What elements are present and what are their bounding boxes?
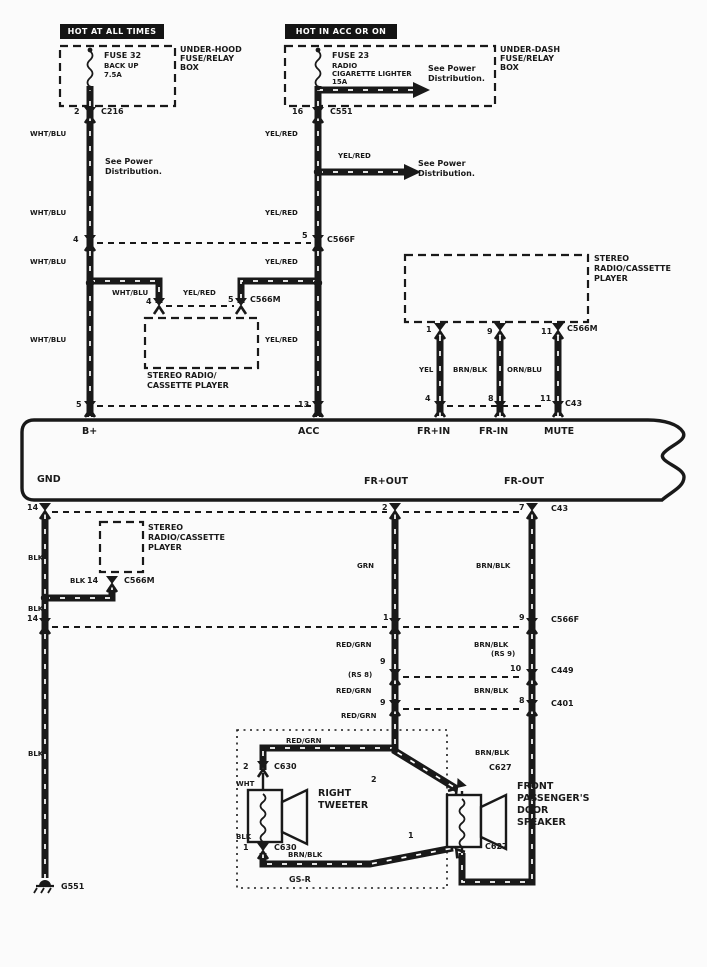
fuse-rating: 15A [332, 78, 347, 86]
wire-color-label: BLK [28, 605, 43, 613]
banner-label: HOT AT ALL TIMES [68, 27, 157, 36]
wire-color-label: YEL/RED [265, 130, 298, 138]
door-speaker-icon [447, 795, 506, 849]
wire-color-label: YEL [419, 366, 433, 374]
connector-label: C43 [565, 399, 582, 408]
wire-color-label: GRN [357, 562, 374, 570]
component-label: PLAYER [594, 274, 628, 283]
pin-number: 1 [383, 613, 389, 622]
pin-number: 5 [228, 295, 234, 304]
connector-label: C627 [485, 842, 508, 851]
note: See Power [428, 64, 476, 73]
component-label: FRONT [517, 782, 553, 791]
wire-color-label: BRN/BLK [453, 366, 487, 374]
wire-color-label: ORN/BLU [507, 366, 542, 374]
wire-color-label: BLK [28, 750, 43, 758]
wire-color-label: RED/GRN [336, 641, 372, 649]
wire-color-label: RED/GRN [336, 687, 372, 695]
component-label: SPEAKER [517, 818, 566, 827]
pin-number: 2 [243, 762, 249, 771]
pin-number: 7 [519, 503, 525, 512]
arrow-icon [413, 82, 430, 98]
pin-number: 11 [540, 394, 551, 403]
wire-color-label: WHT/BLU [112, 289, 148, 297]
component-label: RADIO/CASSETTE [148, 533, 225, 542]
terminal-label: FR+IN [417, 427, 450, 436]
wire-color-label: BRN/BLK [476, 562, 510, 570]
note: See Power [105, 157, 153, 166]
connector-label: C566F [327, 235, 355, 244]
pin-number: 13 [298, 400, 309, 409]
rs-note: (RS 8) [348, 671, 372, 679]
pin-number: 5 [302, 231, 308, 240]
pin-number: 2 [371, 775, 377, 784]
option-label: GS-R [286, 875, 314, 884]
terminal-label: FR-IN [479, 427, 508, 436]
wire-color-label: YEL/RED [338, 152, 371, 160]
fuse-icon [88, 48, 93, 91]
banner-label: HOT IN ACC OR ON [296, 27, 387, 36]
pin-number: 1 [408, 831, 414, 840]
connector-label: C566M [250, 295, 281, 304]
wire-color-label: BRN/BLK [474, 641, 508, 649]
box-label: FUSE/RELAY [180, 54, 234, 63]
pin-number: 9 [380, 657, 386, 666]
wire-blk-ground [45, 514, 112, 878]
pin-number: 16 [292, 107, 303, 116]
pin-number: 14 [27, 503, 38, 512]
diagram-linework [0, 0, 707, 967]
pin-number: 1 [426, 325, 432, 334]
pin-number: 5 [76, 400, 82, 409]
pin-number: 9 [380, 698, 386, 707]
box-label: UNDER-HOOD [180, 45, 242, 54]
note: Distribution. [418, 169, 475, 178]
wire-color-label: RED/GRN [286, 737, 322, 745]
wire-color-label: YEL/RED [265, 209, 298, 217]
fuse-name: FUSE 23 [332, 51, 369, 60]
connector-label: C627 [489, 763, 512, 772]
component-label: TWEETER [318, 801, 368, 810]
wire-color-label: YEL/RED [265, 336, 298, 344]
connector-label: C216 [101, 107, 124, 116]
box-label: FUSE/RELAY [500, 54, 554, 63]
connector-label: C566F [551, 615, 579, 624]
ground-label: G551 [61, 882, 84, 891]
terminal-label: FR+OUT [364, 477, 408, 486]
radio-unit-outline [22, 420, 684, 500]
pin-number: 9 [519, 613, 525, 622]
wire-color-label: WHT [236, 780, 254, 788]
connector-label: C449 [551, 666, 574, 675]
terminal-label: MUTE [544, 427, 574, 436]
pin-number: 2 [74, 107, 80, 116]
fuse-icon [316, 48, 321, 91]
pin-number: 8 [519, 696, 525, 705]
pin-number: 14 [87, 576, 98, 585]
pin-number: 4 [146, 297, 152, 306]
terminal-label: FR-OUT [504, 477, 544, 486]
fuse-rating: 7.5A [104, 71, 122, 79]
pin-number: 10 [510, 664, 521, 673]
component-label: STEREO RADIO/ [147, 371, 217, 380]
component-label: STEREO [594, 254, 629, 263]
component-label: DOOR [517, 806, 548, 815]
connector-label: C43 [551, 504, 568, 513]
wire-color-label: BLK [70, 577, 85, 585]
terminal-label: ACC [298, 427, 319, 436]
connector-label: C566M [567, 324, 598, 333]
note: See Power [418, 159, 466, 168]
wire-color-label: YEL/RED [265, 258, 298, 266]
hot-at-all-times-banner: HOT AT ALL TIMES [60, 24, 164, 39]
pin-number: 4 [73, 235, 79, 244]
fuse-desc: CIGARETTE LIGHTER [332, 70, 412, 78]
pin-number: 8 [488, 394, 494, 403]
pin-number: 9 [487, 327, 493, 336]
wire-color-label: BRN/BLK [475, 749, 509, 757]
fuse-name: FUSE 32 [104, 51, 141, 60]
box-label: BOX [500, 63, 519, 72]
tweeter-speaker-icon [248, 790, 307, 844]
wire-color-label: YEL/RED [183, 289, 216, 297]
rs-note: (RS 9) [491, 650, 515, 658]
connector-label: C566M [124, 576, 155, 585]
terminal-label: GND [37, 475, 61, 484]
box-label: BOX [180, 63, 199, 72]
connector-label: C551 [330, 107, 353, 116]
stereo-box-top-left [145, 318, 258, 368]
connector-label: C630 [274, 762, 297, 771]
stereo-box-bottom-left [100, 522, 143, 572]
stereo-box-top-right [405, 255, 588, 322]
component-label: RIGHT [318, 789, 351, 798]
component-label: PASSENGER'S [517, 794, 590, 803]
wire-grn-red-grn [263, 514, 457, 789]
pin-number: 14 [27, 614, 38, 623]
wiring-diagram: HOT AT ALL TIMES HOT IN ACC OR ON FUSE 3… [0, 0, 707, 967]
box-label: UNDER-DASH [500, 45, 560, 54]
component-label: PLAYER [148, 543, 182, 552]
note: Distribution. [105, 167, 162, 176]
connector-icon [235, 298, 247, 314]
connector-icon [153, 298, 165, 314]
component-label: STEREO [148, 523, 183, 532]
wire-color-label: BLK [28, 554, 43, 562]
fuse-desc: RADIO [332, 62, 357, 70]
pin-number: 2 [382, 503, 388, 512]
ground-icon [34, 880, 54, 893]
terminal-label: B+ [82, 427, 97, 436]
wire-color-label: WHT/BLU [30, 130, 66, 138]
pin-number: 11 [541, 327, 552, 336]
wire-color-label: RED/GRN [341, 712, 377, 720]
wire-color-label: WHT/BLU [30, 336, 66, 344]
wire-color-label: WHT/BLU [30, 209, 66, 217]
wire-color-label: BRN/BLK [288, 851, 322, 859]
wire-color-label: BLK [236, 833, 251, 841]
pin-number: 4 [425, 394, 431, 403]
connector-label: C401 [551, 699, 574, 708]
note: Distribution. [428, 74, 485, 83]
wire-color-label: BRN/BLK [474, 687, 508, 695]
component-label: RADIO/CASSETTE [594, 264, 671, 273]
pin-number: 1 [243, 843, 249, 852]
wire-color-label: WHT/BLU [30, 258, 66, 266]
component-label: CASSETTE PLAYER [147, 381, 229, 390]
hot-in-acc-banner: HOT IN ACC OR ON [285, 24, 397, 39]
fuse-desc: BACK UP [104, 62, 139, 70]
wire-wht-blu [90, 86, 159, 417]
